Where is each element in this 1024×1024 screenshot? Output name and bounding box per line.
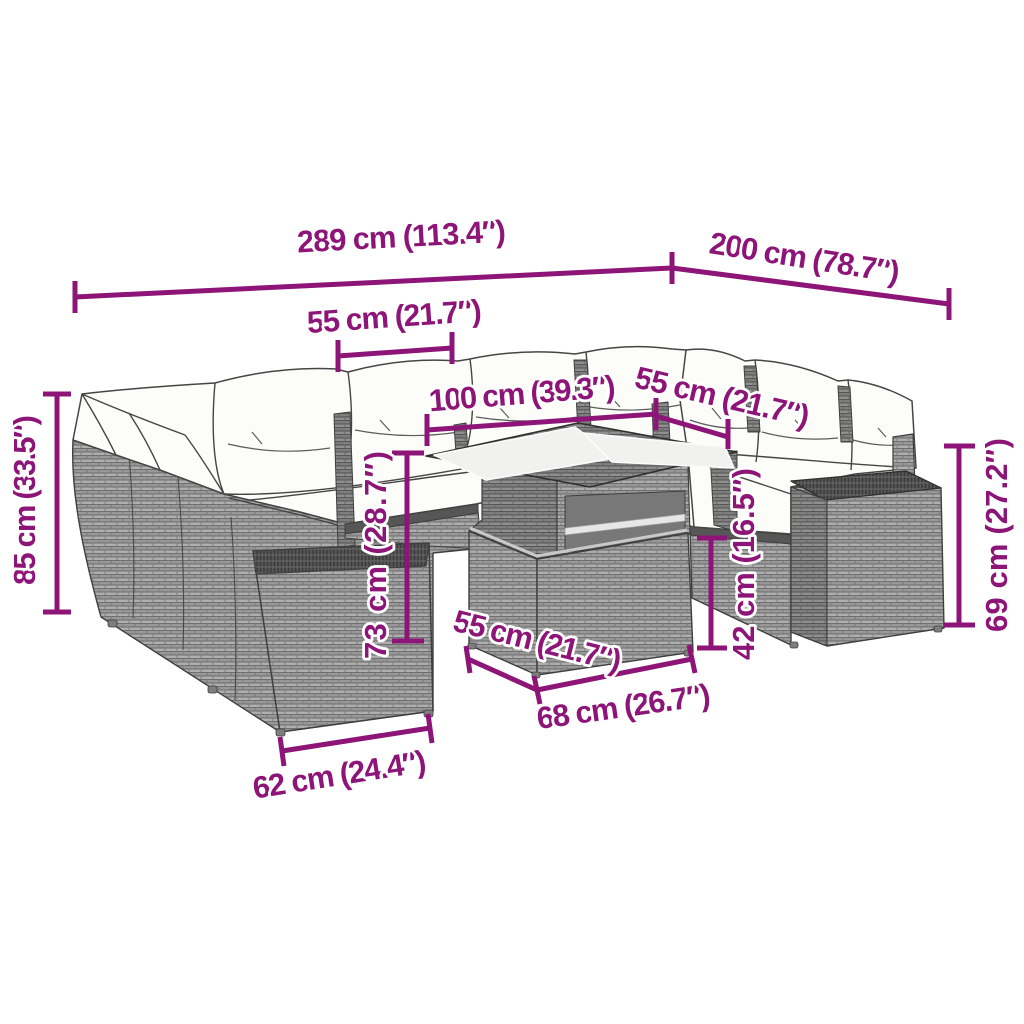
svg-text:69 cm (27.2″): 69 cm (27.2″) xyxy=(979,438,1014,632)
svg-text:85 cm (33.5″): 85 cm (33.5″) xyxy=(7,415,42,585)
svg-text:42 cm (16.5″): 42 cm (16.5″) xyxy=(726,468,761,660)
svg-text:73 cm (28.7″): 73 cm (28.7″) xyxy=(358,451,393,659)
